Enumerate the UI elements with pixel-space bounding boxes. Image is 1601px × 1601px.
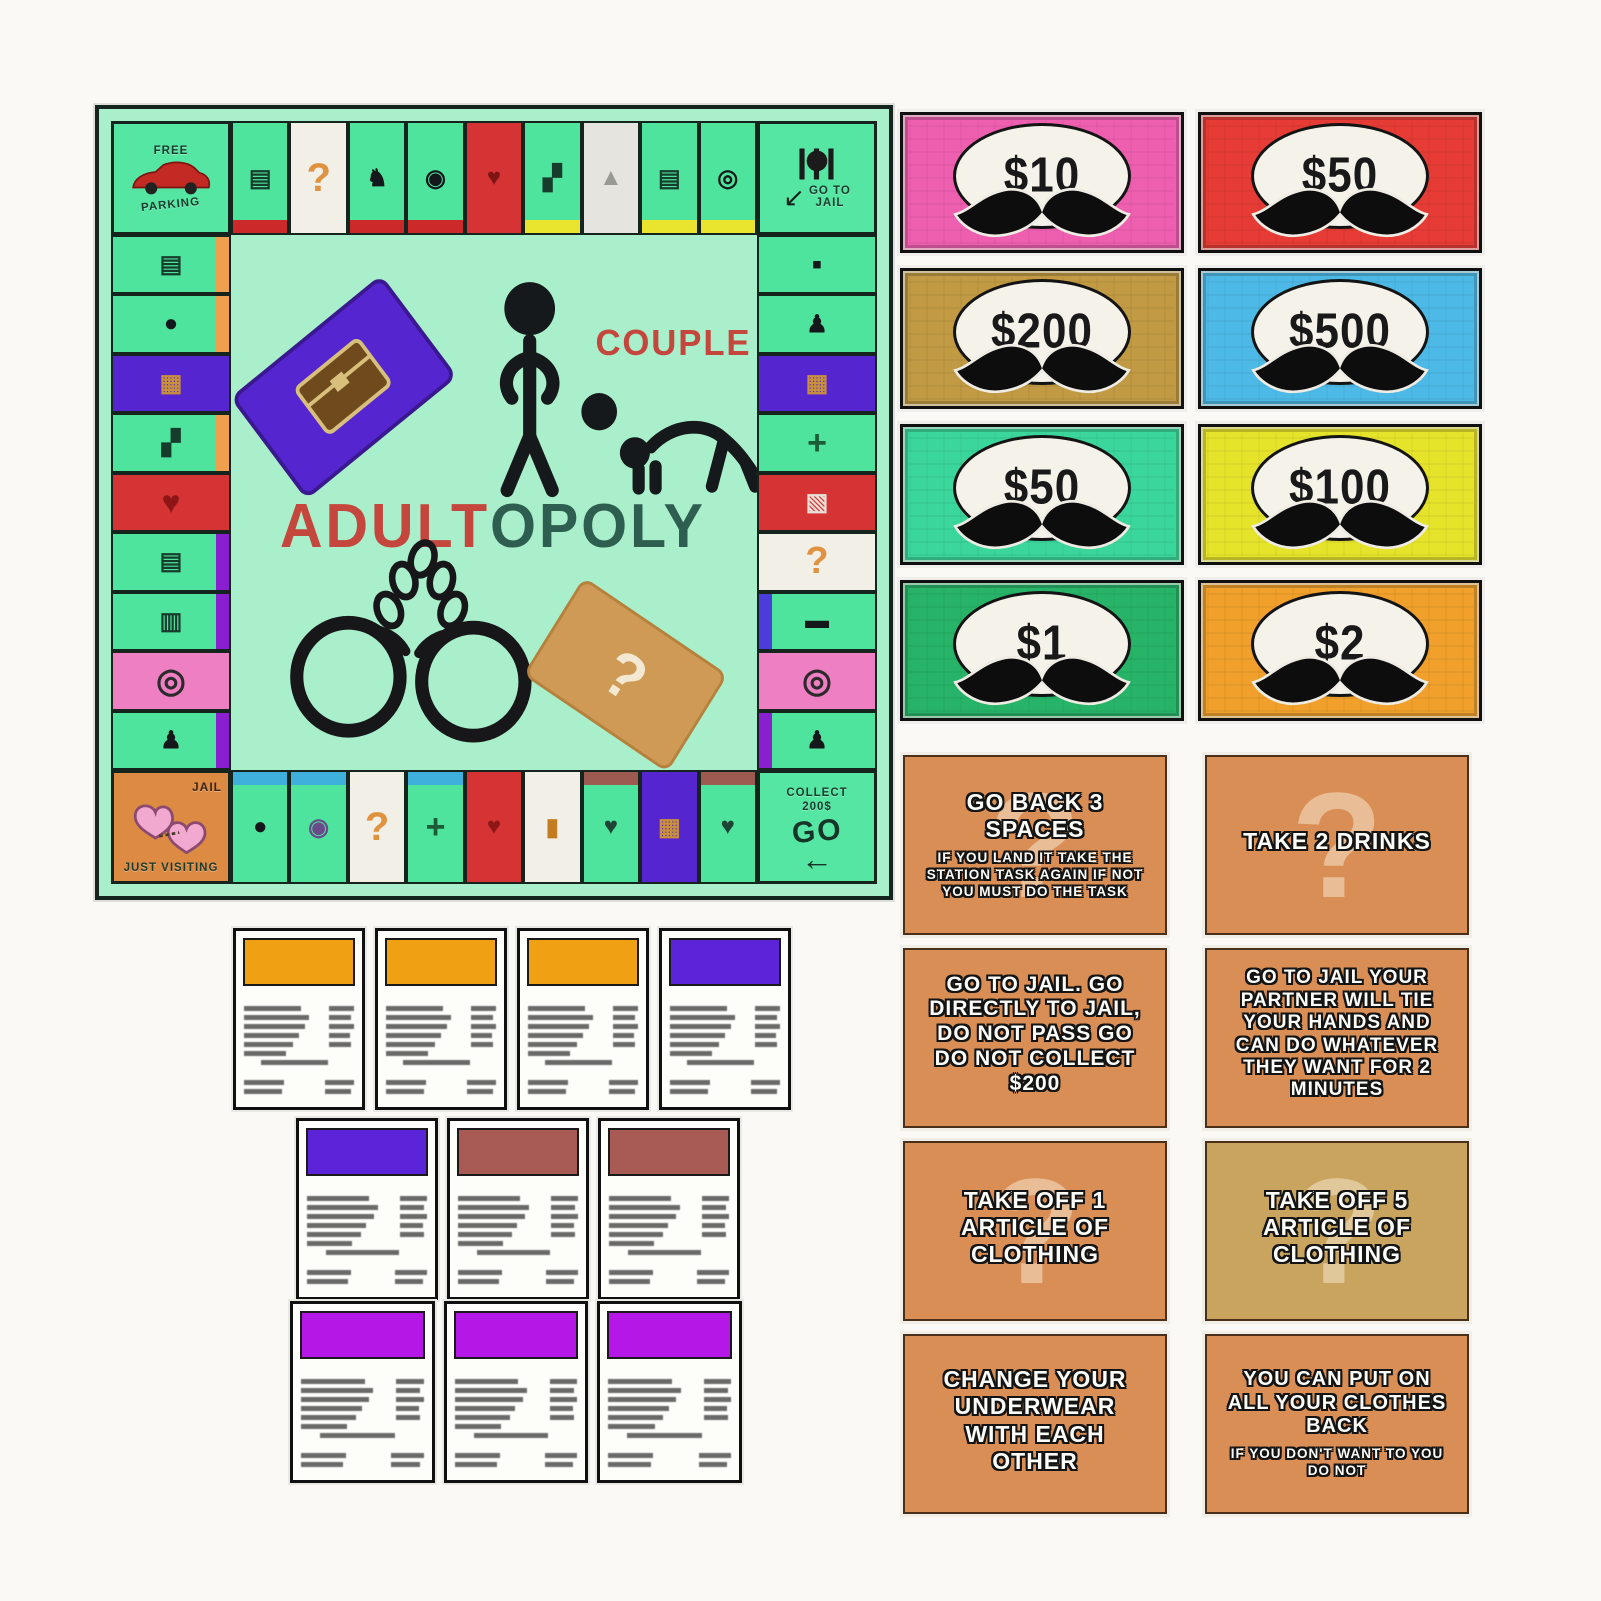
space-icon: ?: [291, 123, 345, 233]
board-title-part1: ADULT: [280, 491, 490, 560]
property-card-header: [454, 1311, 579, 1359]
bottom-spaces: ● ◉ ? + ♥: [231, 770, 757, 884]
space-icon: ♟: [759, 296, 875, 351]
board-space: ▮: [523, 770, 581, 884]
space-icon: ▞: [113, 415, 229, 470]
space-icon: ◎: [759, 653, 875, 708]
corner-go-to-jail: ↙ GO TO JAIL: [757, 121, 877, 235]
board-space: ▤: [640, 121, 698, 235]
board-space: ▥: [111, 592, 231, 651]
space-icon: ▤: [113, 237, 229, 292]
space-icon: ◉: [291, 772, 345, 882]
red-car-icon: [128, 159, 214, 197]
property-card-header: [306, 1128, 428, 1176]
action-card-title: GO TO JAIL YOUR PARTNER WILL TIE YOUR HA…: [1223, 967, 1451, 1101]
space-icon: ♥: [113, 475, 229, 530]
property-card: [659, 928, 791, 1110]
action-card-title: YOU CAN PUT ON ALL YOUR CLOTHES BACK: [1223, 1368, 1451, 1439]
space-icon: ▦: [759, 356, 875, 411]
jail-label: JAIL: [192, 780, 222, 794]
space-icon: ▲: [584, 123, 638, 233]
property-card: [444, 1301, 589, 1483]
property-card-body: [457, 1184, 579, 1290]
board-space: ?: [289, 121, 347, 235]
board-space: ▲: [582, 121, 640, 235]
space-icon: ◎: [701, 123, 755, 233]
property-card-body: [454, 1367, 579, 1473]
board-space: ?: [757, 532, 877, 591]
property-card-body: [306, 1184, 428, 1290]
board-space: ◉: [406, 121, 464, 235]
game-board: FREE PARKING ▤ ? ♞: [95, 105, 893, 900]
property-card-body: [527, 994, 639, 1100]
space-icon: ▧: [759, 475, 875, 530]
board-center: COUPLE ADULTOPOLY ?: [231, 235, 757, 770]
property-card-header: [300, 1311, 425, 1359]
board-space: ◎: [757, 651, 877, 710]
go-label: GO: [790, 813, 843, 851]
board-space: ▦: [757, 354, 877, 413]
space-icon: ?: [350, 772, 404, 882]
property-cards-row2: [296, 1118, 740, 1300]
property-card-header: [457, 1128, 579, 1176]
collect-amount: 200$: [802, 801, 832, 813]
money-bill: $100: [1198, 424, 1482, 565]
board-space: ♥: [699, 770, 757, 884]
action-card-subtitle: IF YOU DON'T WANT TO YOU DO NOT: [1223, 1446, 1451, 1480]
free-parking-label-bottom: PARKING: [141, 196, 201, 214]
property-card-body: [608, 1184, 730, 1290]
property-card: [375, 928, 507, 1110]
board-space: ♥: [111, 473, 231, 532]
space-icon: ▬: [759, 594, 875, 649]
board-space: ▧: [757, 473, 877, 532]
action-card-title: TAKE OFF 5 ARTICLE OF CLOTHING: [1223, 1187, 1451, 1268]
mustache-icon: [940, 186, 1144, 248]
board-top-row: FREE PARKING ▤ ? ♞: [111, 121, 877, 235]
go-to-jail-label-bottom: JAIL: [809, 197, 851, 209]
just-visiting-label: JUST VISITING: [124, 862, 219, 874]
space-icon: ♥: [584, 772, 638, 882]
space-icon: ♟: [759, 713, 875, 768]
board-space: ▬: [757, 592, 877, 651]
action-card: GO TO JAIL YOUR PARTNER WILL TIE YOUR HA…: [1205, 948, 1469, 1128]
property-card: [598, 1118, 740, 1300]
action-card: GO TO JAIL. GO DIRECTLY TO JAIL, DO NOT …: [903, 948, 1167, 1128]
heart-handcuffs-icon: [129, 796, 213, 860]
board-space: ▦: [640, 770, 698, 884]
space-icon: ▪: [759, 237, 875, 292]
space-icon: ▤: [113, 534, 229, 589]
board-space: ●: [111, 294, 231, 353]
space-icon: ▤: [233, 123, 287, 233]
board-title: ADULTOPOLY: [280, 491, 706, 560]
action-card-title: TAKE 2 DRINKS: [1243, 828, 1431, 855]
action-cards-grid: ? GO BACK 3 SPACES IF YOU LAND IT TAKE T…: [903, 755, 1469, 1514]
board-space: +: [757, 413, 877, 472]
board-space: ▪: [757, 235, 877, 294]
board-space: +: [406, 770, 464, 884]
board-space: ♟: [757, 294, 877, 353]
mustache-icon: [1238, 498, 1442, 560]
property-card: [447, 1118, 589, 1300]
action-card: ? TAKE 2 DRINKS: [1205, 755, 1469, 935]
space-icon: ♞: [350, 123, 404, 233]
action-card-title: TAKE OFF 1 ARTICLE OF CLOTHING: [921, 1187, 1149, 1268]
space-icon: ▮: [525, 772, 579, 882]
board-space: ▦: [111, 354, 231, 413]
space-icon: ●: [113, 296, 229, 351]
board-space: ◉: [289, 770, 347, 884]
space-icon: +: [759, 415, 875, 470]
action-card: CHANGE YOUR UNDERWEAR WITH EACH OTHER: [903, 1334, 1167, 1514]
space-icon: ♟: [113, 713, 229, 768]
left-arrow-icon: ←: [801, 851, 833, 867]
handcuffs-icon: [297, 539, 525, 735]
property-card-body: [300, 1367, 425, 1473]
property-cards-row1: [233, 928, 791, 1110]
space-icon: ▥: [113, 594, 229, 649]
board-space: ▤: [231, 121, 289, 235]
board-space: ♥: [465, 121, 523, 235]
board-space: ●: [231, 770, 289, 884]
action-card-subtitle: IF YOU LAND IT TAKE THE STATION TASK AGA…: [921, 850, 1149, 901]
mustache-icon: [940, 498, 1144, 560]
action-card-title: CHANGE YOUR UNDERWEAR WITH EACH OTHER: [921, 1366, 1149, 1475]
free-parking-label-top: FREE: [154, 145, 189, 157]
space-icon: ▦: [113, 356, 229, 411]
mustache-icon: [1238, 654, 1442, 716]
board-space: ♟: [111, 711, 231, 770]
space-icon: ▞: [525, 123, 579, 233]
corner-go: COLLECT 200$ GO ←: [757, 770, 877, 884]
go-to-jail-label-top: GO TO: [809, 185, 851, 197]
property-card-body: [669, 994, 781, 1100]
property-card-header: [607, 1311, 732, 1359]
board-space: ♥: [465, 770, 523, 884]
space-icon: +: [408, 772, 462, 882]
board-space: ▞: [523, 121, 581, 235]
action-card: YOU CAN PUT ON ALL YOUR CLOTHES BACK IF …: [1205, 1334, 1469, 1514]
jail-bars-icon: [786, 146, 848, 182]
money-bill: $50: [1198, 112, 1482, 253]
money-bill: $1: [900, 580, 1184, 721]
space-icon: ◉: [408, 123, 462, 233]
action-card: ? TAKE OFF 5 ARTICLE OF CLOTHING: [1205, 1141, 1469, 1321]
mustache-icon: [940, 654, 1144, 716]
space-icon: ▦: [642, 772, 696, 882]
board-space: ?: [348, 770, 406, 884]
money-bills-grid: $10 $50 $200 $500: [900, 112, 1482, 721]
community-chest-card: [233, 277, 455, 497]
board-space: ♥: [582, 770, 640, 884]
corner-free-parking: FREE PARKING: [111, 121, 231, 235]
property-card-header: [385, 938, 497, 986]
action-card-title: GO BACK 3 SPACES: [921, 789, 1149, 843]
stick-figures-crawling: [581, 393, 755, 488]
space-icon: ◎: [113, 653, 229, 708]
property-cards-row3: [290, 1301, 742, 1483]
action-card: ? GO BACK 3 SPACES IF YOU LAND IT TAKE T…: [903, 755, 1167, 935]
property-card-header: [608, 1128, 730, 1176]
property-card-body: [243, 994, 355, 1100]
stick-figure-standing: [504, 282, 555, 490]
property-card: [233, 928, 365, 1110]
mustache-icon: [1238, 186, 1442, 248]
couple-label: COUPLE: [595, 322, 751, 363]
property-card: [290, 1301, 435, 1483]
money-bill: $200: [900, 268, 1184, 409]
money-bill: $2: [1198, 580, 1482, 721]
space-icon: ▤: [642, 123, 696, 233]
money-bill: $50: [900, 424, 1184, 565]
money-bill: $500: [1198, 268, 1482, 409]
property-card-header: [243, 938, 355, 986]
action-card-title: GO TO JAIL. GO DIRECTLY TO JAIL, DO NOT …: [921, 973, 1149, 1097]
space-icon: ?: [759, 534, 875, 589]
property-card: [517, 928, 649, 1110]
space-icon: ●: [233, 772, 287, 882]
money-bill: $10: [900, 112, 1184, 253]
property-card-header: [527, 938, 639, 986]
chance-card: ?: [525, 579, 726, 770]
board-space: ◎: [111, 651, 231, 710]
board-space: ◎: [699, 121, 757, 235]
space-icon: ♥: [701, 772, 755, 882]
southwest-arrow-icon: ↙: [783, 184, 805, 210]
board-right-column: ▪ ♟ ▦ + ▧ ?: [757, 235, 877, 770]
property-card-body: [607, 1367, 732, 1473]
corner-jail: JAIL JUST VISITING: [111, 770, 231, 884]
board-title-part2: OPOLY: [490, 491, 706, 560]
board-space: ♟: [757, 711, 877, 770]
property-card: [597, 1301, 742, 1483]
mustache-icon: [940, 342, 1144, 404]
space-icon: ♥: [467, 772, 521, 882]
property-card-body: [385, 994, 497, 1100]
property-card-header: [669, 938, 781, 986]
board-space: ▤: [111, 235, 231, 294]
board-bottom-row: JAIL JUST VISITING ● ◉: [111, 770, 877, 884]
board-space: ▤: [111, 532, 231, 591]
space-icon: ♥: [467, 123, 521, 233]
question-watermark: ?: [905, 757, 1165, 933]
collect-label: COLLECT: [786, 787, 847, 799]
mustache-icon: [1238, 342, 1442, 404]
board-left-column: ▤ ● ▦ ▞ ♥ ▤: [111, 235, 231, 770]
board-space: ♞: [348, 121, 406, 235]
board-space: ▞: [111, 413, 231, 472]
action-card: ? TAKE OFF 1 ARTICLE OF CLOTHING: [903, 1141, 1167, 1321]
top-spaces: ▤ ? ♞ ◉ ♥: [231, 121, 757, 235]
property-card: [296, 1118, 438, 1300]
board-center-art: COUPLE ADULTOPOLY ?: [231, 235, 757, 770]
